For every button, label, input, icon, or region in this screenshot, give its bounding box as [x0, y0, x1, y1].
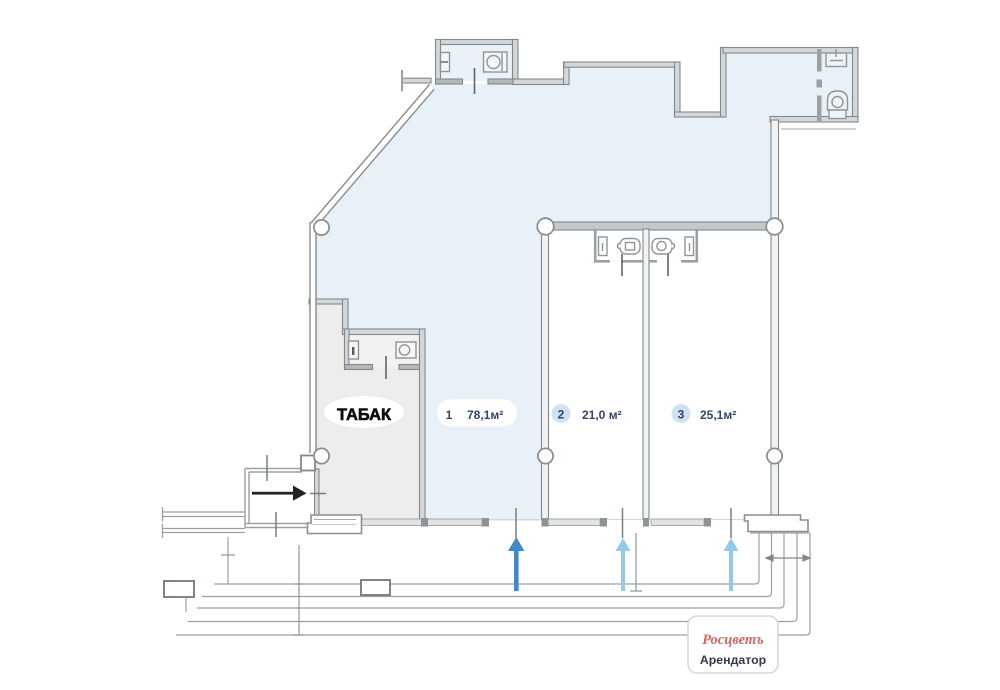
- svg-text:Арендатор: Арендатор: [700, 653, 766, 667]
- svg-text:25,1м²: 25,1м²: [700, 408, 736, 422]
- svg-text:2: 2: [558, 408, 565, 422]
- svg-text:ТАБАК: ТАБАК: [337, 405, 392, 424]
- svg-text:Росцветъ: Росцветъ: [702, 632, 764, 648]
- svg-text:78,1м²: 78,1м²: [467, 408, 503, 422]
- svg-text:21,0 м²: 21,0 м²: [582, 408, 622, 422]
- svg-text:1: 1: [446, 408, 453, 422]
- svg-text:3: 3: [678, 408, 685, 422]
